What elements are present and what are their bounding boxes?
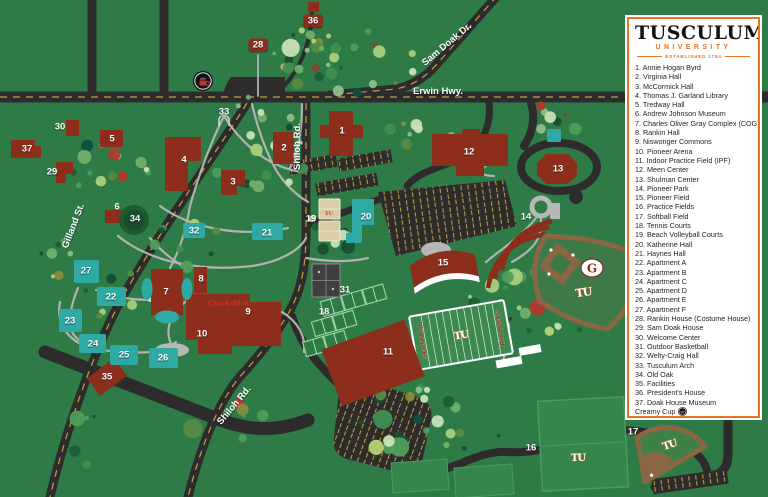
legend-item-7: 7. Charles Oliver Gray Complex (COG)	[635, 119, 752, 128]
pioneer-field-grandstand	[408, 246, 479, 294]
map-marker-8: 8	[198, 274, 203, 285]
map-marker-6: 6	[114, 202, 119, 213]
legend-item-33: 33. Tusculum Arch	[635, 361, 752, 370]
legend-panel: TUSCULUM UNIVERSITY ESTABLISHED 1794 1. …	[627, 17, 760, 418]
field-strip	[518, 344, 541, 356]
legend-item-36: 36. President's House	[635, 388, 752, 397]
road-label-shiloh-upper: Shiloh Rd.	[292, 123, 303, 170]
map-marker-24: 24	[88, 339, 99, 350]
legend-item-37: 37. Doak House Museum	[635, 398, 752, 407]
chick-fil-a-logo: Chick-fil-A	[671, 417, 718, 418]
map-marker-16: 16	[526, 443, 537, 454]
legend-title: TUSCULUM	[635, 23, 752, 43]
legend-item-17: 17. Softball Field	[635, 212, 752, 221]
map-marker-27: 27	[81, 266, 92, 277]
legend-item-32: 32. Welty-Craig Hall	[635, 351, 752, 360]
legend-item-16: 16. Practice Fields	[635, 202, 752, 211]
chick-fil-a-map-logo: Chick-fil-A	[207, 298, 248, 308]
campus-map: TU Pioneers Pioneers TU G TU	[0, 0, 768, 497]
map-marker-36: 36	[304, 15, 323, 28]
pioneer-field: Pioneers Pioneers TU	[409, 300, 513, 370]
legend-item-15: 15. Pioneer Field	[635, 193, 752, 202]
legend-item-10: 10. Pioneer Arena	[635, 147, 752, 156]
legend-item-14: 14. Pioneer Park	[635, 184, 752, 193]
map-marker-19: 19	[306, 214, 317, 225]
legend-item-25: 25. Apartment D	[635, 286, 752, 295]
path-plaza	[550, 203, 560, 219]
legend-item-34: 34. Old Oak	[635, 370, 752, 379]
map-marker-2: 2	[281, 143, 286, 154]
map-marker-15: 15	[438, 258, 449, 269]
legend-item-27: 27. Apartment F	[635, 305, 752, 314]
map-marker-33: 33	[219, 107, 230, 118]
map-marker-21: 21	[262, 228, 273, 239]
legend-subtitle: UNIVERSITY	[635, 44, 752, 52]
creamy-cup-icon	[678, 407, 687, 416]
map-marker-23: 23	[65, 316, 76, 327]
map-marker-22: 22	[106, 292, 117, 303]
outdoor-basketball	[312, 264, 340, 297]
legend-item-13: 13. Shulman Center	[635, 175, 752, 184]
map-marker-4: 4	[181, 155, 186, 166]
svg-text:G: G	[587, 262, 597, 276]
legend-item-4: 4. Thomas J. Garland Library	[635, 91, 752, 100]
legend-item-8: 8. Rankin Hall	[635, 128, 752, 137]
legend-item-6: 6. Andrew Johnson Museum	[635, 109, 752, 118]
legend-item-20: 20. Katherine Hall	[635, 240, 752, 249]
map-marker-30: 30	[55, 122, 66, 133]
map-marker-9: 9	[245, 307, 250, 318]
legend-item-1: 1. Annie Hogan Byrd	[635, 63, 752, 72]
svg-text:TU: TU	[571, 453, 586, 464]
map-marker-7: 7	[163, 287, 168, 298]
map-marker-31: 31	[340, 285, 351, 296]
legend-item-28: 28. Rankin House (Costume House)	[635, 314, 752, 323]
map-marker-29: 29	[47, 167, 58, 178]
legend-item-29: 29. Sam Doak House	[635, 323, 752, 332]
legend-item-12: 12. Meen Center	[635, 165, 752, 174]
roundabout	[532, 198, 550, 216]
map-marker-20: 20	[361, 212, 372, 223]
field-strip	[496, 356, 523, 368]
map-marker-17: 17	[628, 427, 639, 438]
map-marker-37: 37	[22, 144, 33, 155]
map-marker-28: 28	[249, 39, 268, 52]
legend-item-18: 18. Tennis Courts	[635, 221, 752, 230]
map-marker-1: 1	[339, 126, 344, 137]
legend-item-22: 22. Apartment A	[635, 258, 752, 267]
legend-item-11: 11. Indoor Practice Field (IPF)	[635, 156, 752, 165]
map-marker-10: 10	[197, 329, 208, 340]
legend-item-35: 35. Facilities	[635, 379, 752, 388]
map-marker-11: 11	[383, 347, 393, 358]
legend-item-creamy-cup: Creamy Cup	[635, 407, 752, 417]
legend-item-19: 19. Beach Volleyball Courts	[635, 230, 752, 239]
legend-list: 1. Annie Hogan Byrd2. Virginia Hall3. Mc…	[635, 63, 752, 407]
map-marker-26: 26	[158, 353, 169, 364]
creamy-cup-map-icon	[193, 71, 213, 91]
map-marker-35: 35	[102, 372, 113, 383]
legend-item-23: 23. Apartment B	[635, 268, 752, 277]
legend-item-chick-fil-a: Chick-fil-A Chick-fil-A	[635, 417, 752, 418]
legend-established: ESTABLISHED 1794	[637, 54, 750, 59]
map-marker-12: 12	[464, 147, 475, 158]
map-marker-3: 3	[230, 177, 235, 188]
legend-item-21: 21. Haynes Hall	[635, 249, 752, 258]
legend-item-24: 24. Apartment C	[635, 277, 752, 286]
map-marker-25: 25	[119, 350, 130, 361]
road-label-erwin: Erwin Hwy.	[413, 86, 463, 97]
map-marker-32: 32	[189, 226, 200, 237]
svg-text:TU: TU	[325, 211, 334, 217]
map-marker-14: 14	[521, 212, 532, 223]
map-marker-13: 13	[553, 164, 564, 175]
legend-item-9: 9. Niswonger Commons	[635, 137, 752, 146]
map-marker-5: 5	[109, 134, 114, 145]
legend-item-30: 30. Welcome Center	[635, 333, 752, 342]
legend-item-31: 31. Outdoor Basketball	[635, 342, 752, 351]
softball-field: TU	[633, 418, 710, 482]
legend-item-3: 3. McCormick Hall	[635, 82, 752, 91]
map-marker-34: 34	[130, 214, 141, 225]
map-marker-18: 18	[319, 307, 330, 318]
legend-item-26: 26. Apartment E	[635, 295, 752, 304]
legend-item-2: 2. Virginia Hall	[635, 72, 752, 81]
legend-item-5: 5. Tredway Hall	[635, 100, 752, 109]
